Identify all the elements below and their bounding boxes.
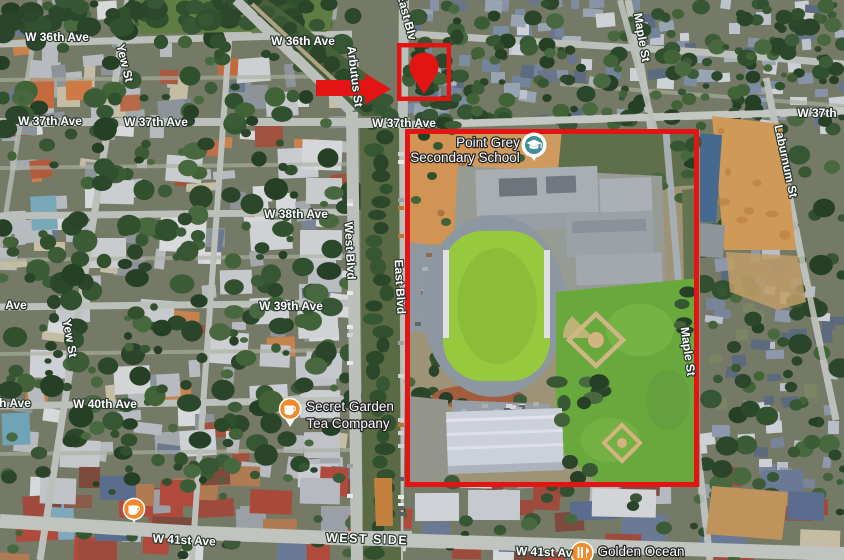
svg-text:W 37th Ave: W 37th Ave [124, 115, 188, 129]
svg-text:WEST SIDE: WEST SIDE [326, 531, 409, 548]
svg-text:W 37th Ave: W 37th Ave [18, 114, 82, 128]
svg-text:W 36th Ave: W 36th Ave [271, 34, 335, 48]
svg-text:W 37th: W 37th [797, 106, 836, 120]
svg-text:Ave: Ave [5, 298, 27, 312]
svg-text:Secret Garden: Secret Garden [306, 399, 394, 414]
svg-text:W 36th Ave: W 36th Ave [25, 30, 89, 44]
svg-text:W 37th Ave: W 37th Ave [372, 116, 436, 130]
svg-text:Secondary School: Secondary School [410, 150, 520, 165]
svg-text:W 40th Ave: W 40th Ave [73, 397, 137, 411]
svg-text:h Ave: h Ave [0, 396, 31, 410]
svg-text:W 39th Ave: W 39th Ave [259, 299, 323, 313]
svg-text:Golden Ocean: Golden Ocean [597, 544, 684, 559]
svg-text:Tea Company: Tea Company [306, 416, 390, 431]
svg-text:W 38th Ave: W 38th Ave [264, 207, 328, 221]
svg-text:Point Grey: Point Grey [456, 135, 520, 150]
svg-text:W 41st Av: W 41st Av [516, 544, 573, 560]
svg-text:East Blvd: East Blvd [392, 259, 409, 314]
